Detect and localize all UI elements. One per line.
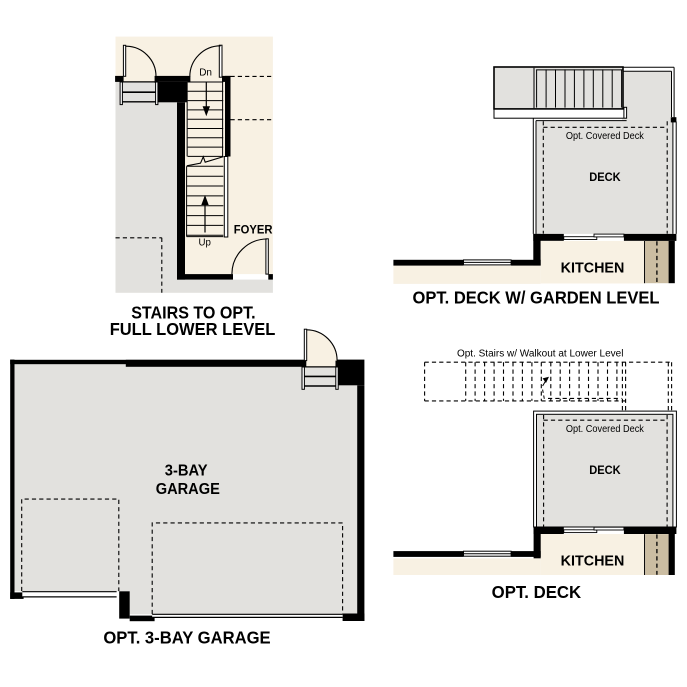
svg-text:3-BAY: 3-BAY: [165, 463, 208, 480]
svg-text:KITCHEN: KITCHEN: [561, 261, 625, 277]
svg-text:GARAGE: GARAGE: [156, 481, 220, 498]
svg-text:Dn: Dn: [199, 67, 212, 78]
svg-text:KITCHEN: KITCHEN: [561, 553, 625, 569]
svg-text:FULL LOWER LEVEL: FULL LOWER LEVEL: [110, 319, 276, 339]
svg-text:DECK: DECK: [589, 463, 621, 477]
svg-text:FOYER: FOYER: [234, 224, 273, 236]
svg-text:Opt. Covered Deck: Opt. Covered Deck: [566, 424, 645, 435]
svg-text:Opt. Covered Deck: Opt. Covered Deck: [566, 131, 645, 142]
svg-text:Opt. Stairs w/ Walkout at Lowe: Opt. Stairs w/ Walkout at Lower Level: [457, 348, 624, 359]
svg-text:DECK: DECK: [589, 170, 621, 184]
svg-text:Up: Up: [199, 238, 212, 249]
svg-text:OPT. 3-BAY GARAGE: OPT. 3-BAY GARAGE: [103, 628, 270, 648]
svg-text:OPT. DECK W/ GARDEN LEVEL: OPT. DECK W/ GARDEN LEVEL: [413, 288, 660, 308]
svg-text:OPT. DECK: OPT. DECK: [492, 582, 582, 602]
